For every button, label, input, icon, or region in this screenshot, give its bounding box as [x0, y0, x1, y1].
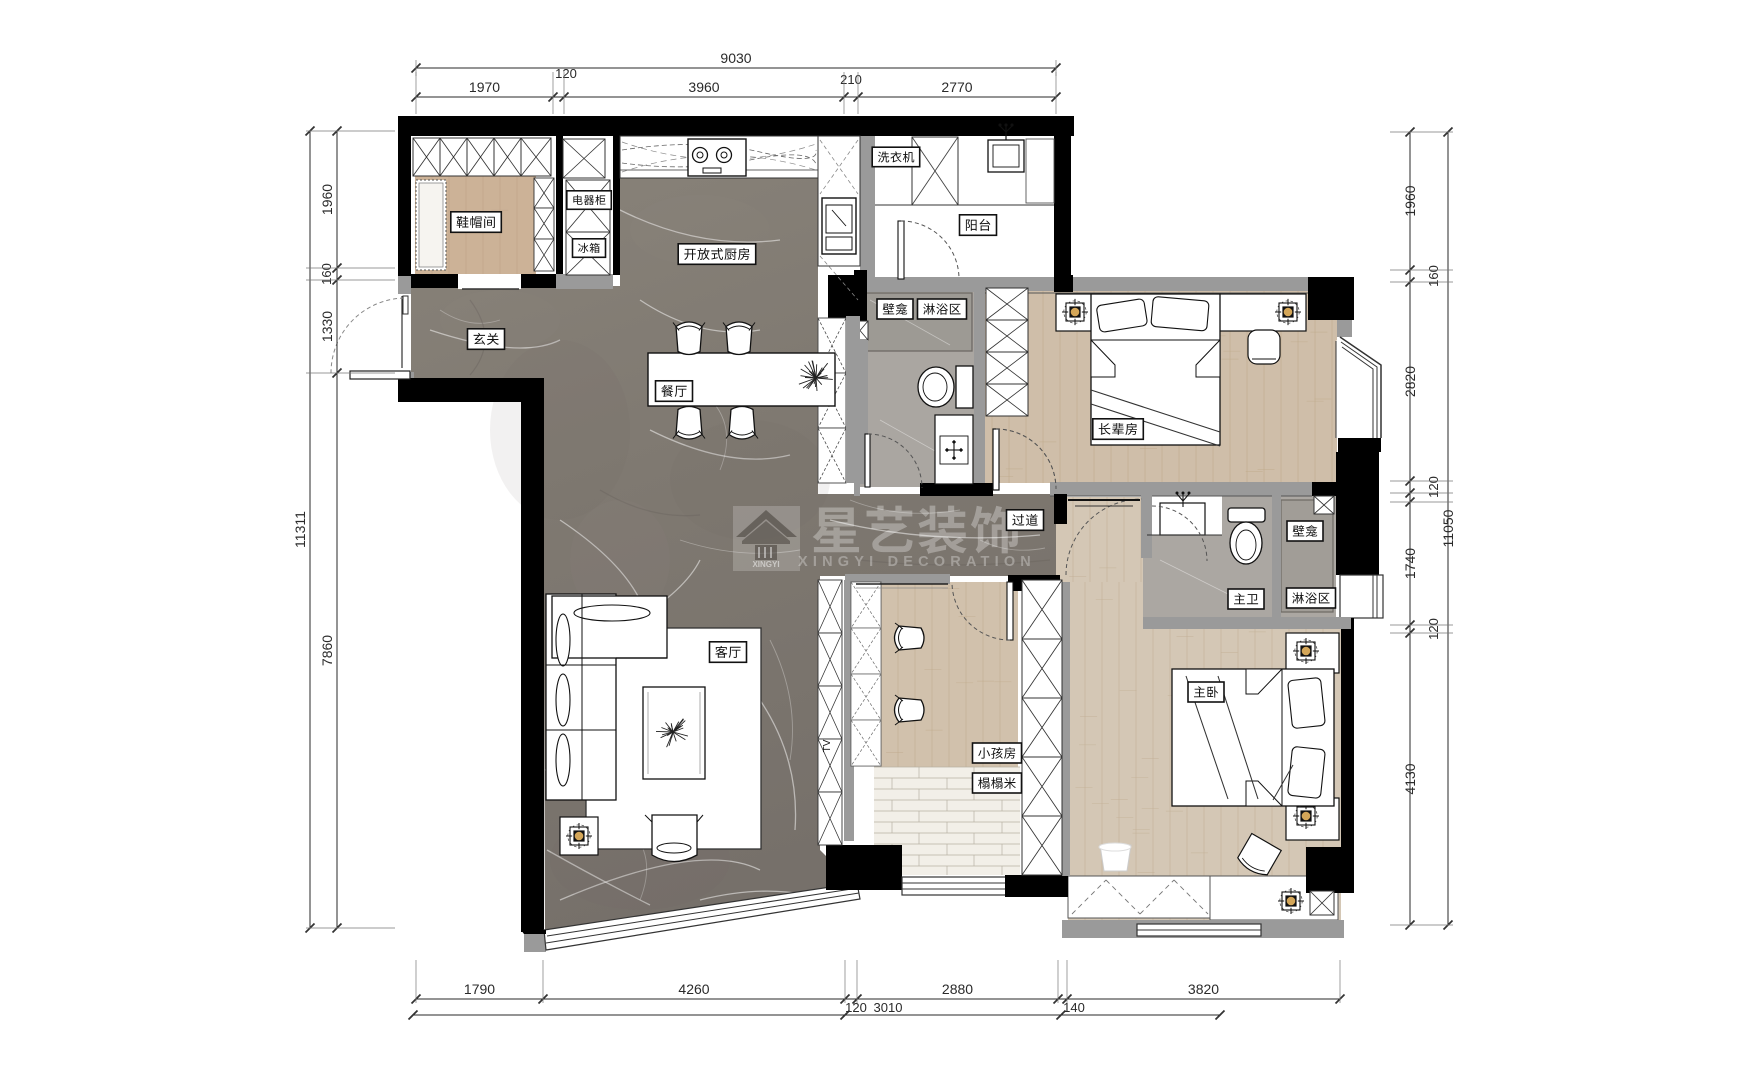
svg-text:3820: 3820 [1188, 981, 1219, 997]
svg-text:1740: 1740 [1402, 548, 1418, 579]
svg-text:TV: TV [822, 739, 833, 752]
svg-text:140: 140 [1063, 1000, 1085, 1015]
svg-text:120: 120 [1426, 476, 1441, 498]
svg-text:2820: 2820 [1402, 366, 1418, 397]
svg-text:XINGYI: XINGYI [752, 560, 779, 569]
svg-text:11050: 11050 [1440, 509, 1456, 547]
svg-text:120: 120 [555, 66, 577, 81]
svg-text:7860: 7860 [319, 635, 335, 666]
svg-text:1790: 1790 [464, 981, 495, 997]
svg-text:XINGYI DECORATION: XINGYI DECORATION [798, 554, 1036, 570]
svg-text:210: 210 [840, 72, 862, 87]
svg-text:2880: 2880 [942, 981, 973, 997]
svg-text:4260: 4260 [678, 981, 709, 997]
svg-text:120: 120 [845, 1000, 867, 1015]
svg-text:3010: 3010 [874, 1000, 903, 1015]
svg-text:1970: 1970 [469, 79, 500, 95]
svg-text:11311: 11311 [292, 511, 308, 548]
svg-text:160: 160 [1426, 265, 1441, 287]
svg-text:2770: 2770 [941, 79, 972, 95]
svg-text:1960: 1960 [1402, 185, 1418, 216]
svg-text:9030: 9030 [720, 50, 751, 66]
svg-text:1330: 1330 [319, 311, 335, 342]
svg-text:120: 120 [1426, 618, 1441, 640]
svg-text:3960: 3960 [688, 79, 719, 95]
svg-text:4130: 4130 [1402, 763, 1418, 794]
svg-text:160: 160 [319, 263, 334, 285]
svg-text:1960: 1960 [319, 184, 335, 215]
